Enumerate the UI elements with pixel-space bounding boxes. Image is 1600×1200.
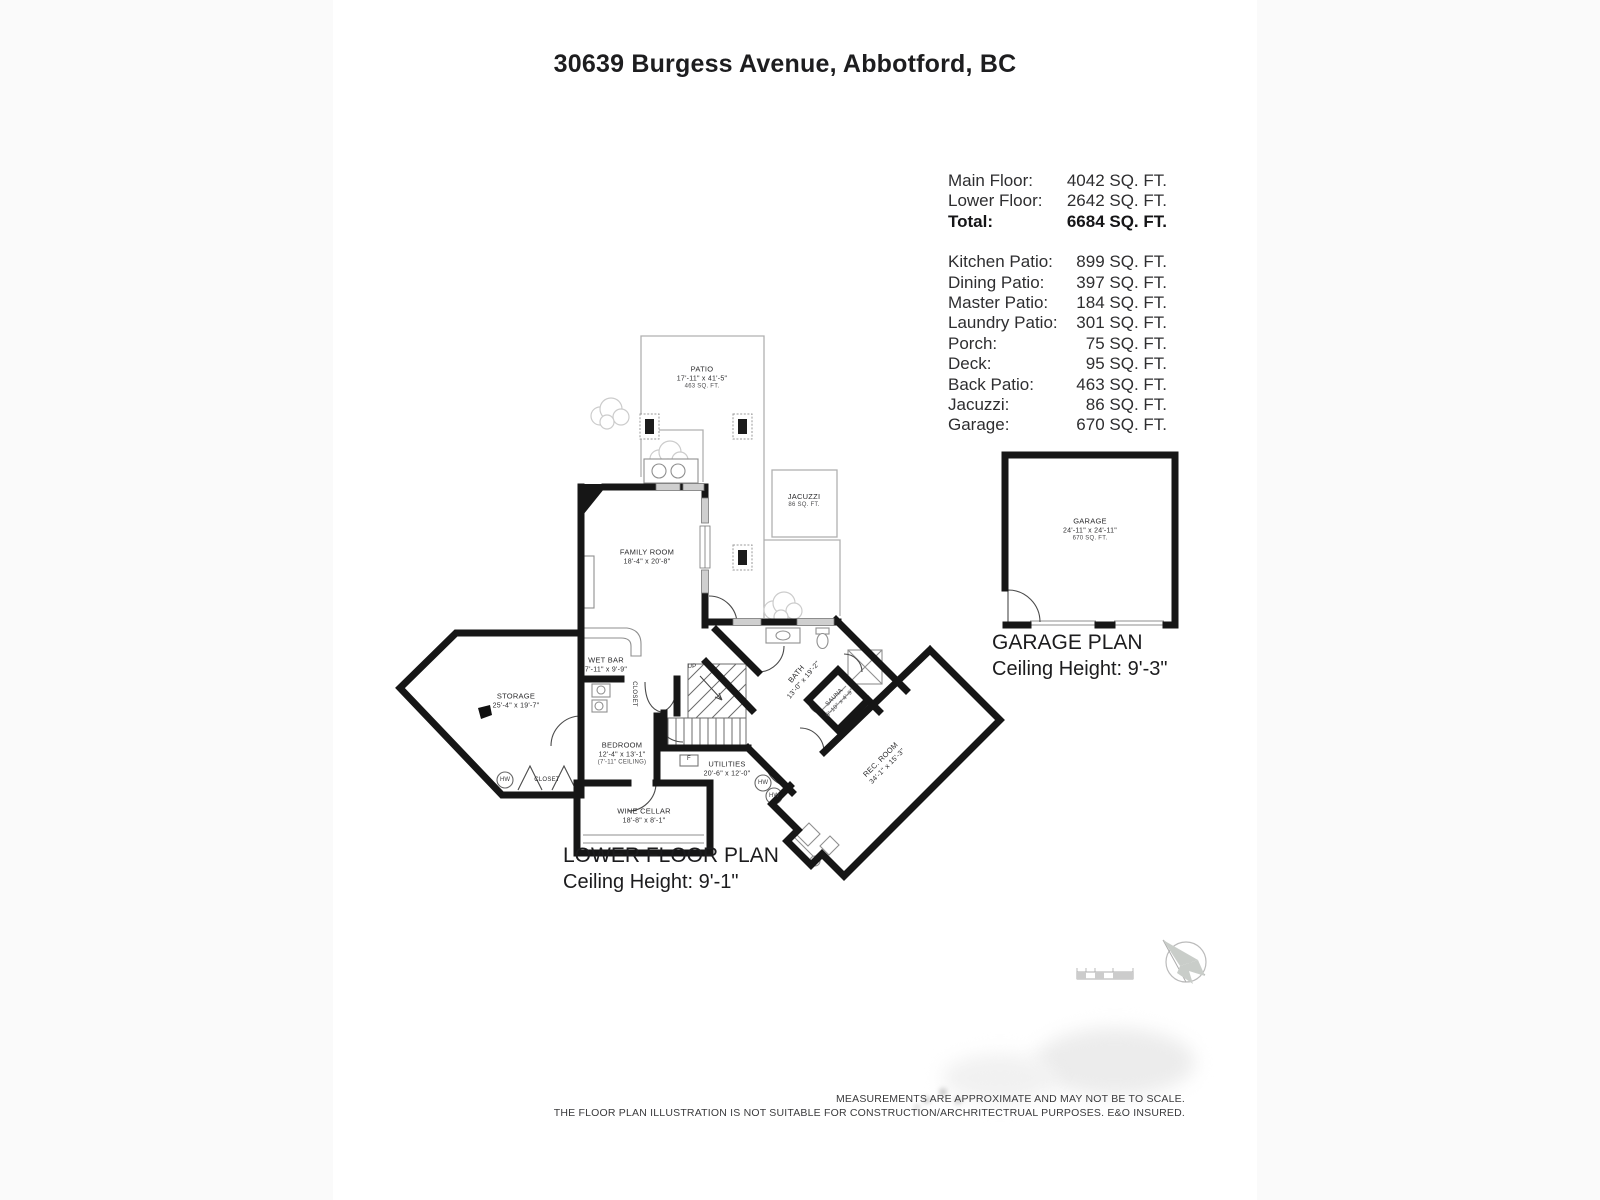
furnace-label: F: [687, 756, 691, 764]
room-label-closet-side: CLOSET: [629, 681, 637, 707]
floor-plan-drawing: [0, 0, 1600, 1200]
room-label-wet-bar: WET BAR 7'-11" x 9'-9": [585, 656, 627, 675]
room-label-bedroom: BEDROOM 12'-4" x 13'-1" (7'-11" CEILING): [598, 741, 647, 768]
area-row: Master Patio:184 SQ. FT.: [948, 293, 1167, 313]
area-summary-rows: Main Floor:4042 SQ. FT.Lower Floor:2642 …: [948, 171, 1167, 232]
media-niche: [584, 556, 594, 608]
disclaimer: MEASUREMENTS ARE APPROXIMATE AND MAY NOT…: [554, 1092, 1185, 1120]
area-row: Laundry Patio:301 SQ. FT.: [948, 313, 1167, 333]
area-row: Lower Floor:2642 SQ. FT.: [948, 191, 1167, 211]
area-row: Kitchen Patio:899 SQ. FT.: [948, 252, 1167, 272]
room-label-family-room: FAMILY ROOM 18'-4" x 20'-8": [620, 548, 674, 567]
floor-plan-page: 30639 Burgess Avenue, Abbotford, BC Main…: [0, 0, 1600, 1200]
room-label-garage: GARAGE 24'-11" x 24'-11" 670 SQ. FT.: [1063, 517, 1117, 544]
area-detail-rows: Kitchen Patio:899 SQ. FT.Dining Patio:39…: [948, 252, 1167, 436]
page-title: 30639 Burgess Avenue, Abbotford, BC: [554, 50, 1017, 79]
hw-label: HW: [500, 777, 510, 783]
hw-label: HW: [769, 793, 779, 799]
room-label-utilities: UTILITIES 20'-6" x 12'-0": [704, 760, 751, 779]
area-row: Deck:95 SQ. FT.: [948, 354, 1167, 374]
room-label-patio: PATIO 17'-11" x 41'-5" 463 SQ. FT.: [677, 365, 727, 392]
area-row: Dining Patio:397 SQ. FT.: [948, 273, 1167, 293]
garage-plan-heading: GARAGE PLAN Ceiling Height: 9'-3": [992, 630, 1167, 682]
room-label-storage: STORAGE 25'-4" x 19'-7": [493, 692, 540, 711]
area-row: Back Patio:463 SQ. FT.: [948, 375, 1167, 395]
area-summary-table: Main Floor:4042 SQ. FT.Lower Floor:2642 …: [948, 171, 1167, 436]
storage-mark: [478, 705, 492, 719]
compass-icon: [1163, 940, 1206, 984]
wine-rack: [583, 835, 704, 843]
hw-label: HW: [758, 780, 768, 786]
lower-plan-heading: LOWER FLOOR PLAN Ceiling Height: 9'-1": [563, 843, 779, 895]
scale-bar: [1077, 968, 1133, 979]
wet-bar-counter: [581, 628, 641, 656]
bush-icon: [591, 398, 802, 624]
toilet-icon: [817, 634, 828, 649]
room-label-jacuzzi: JACUZZI 86 SQ. FT.: [788, 492, 821, 510]
area-row: Main Floor:4042 SQ. FT.: [948, 171, 1167, 191]
area-row: Total:6684 SQ. FT.: [948, 212, 1167, 232]
room-label-closet-bottom: CLOSET: [534, 777, 560, 785]
stairs-up-label: UP: [688, 664, 697, 672]
sink-icon: [776, 631, 790, 640]
area-row: Garage:670 SQ. FT.: [948, 415, 1167, 435]
area-row: Jacuzzi:86 SQ. FT.: [948, 395, 1167, 415]
area-row: Porch:75 SQ. FT.: [948, 334, 1167, 354]
room-label-wine-cellar: WINE CELLAR 18'-8" x 8'-1": [617, 807, 671, 826]
